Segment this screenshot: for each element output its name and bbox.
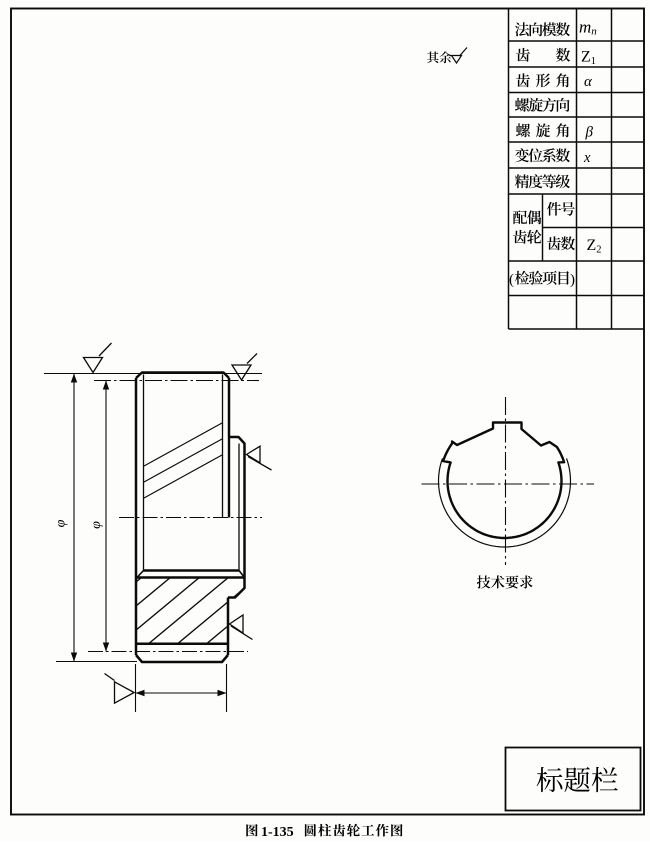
svg-text:φ: φ — [89, 521, 104, 529]
svg-text:1-135: 1-135 — [261, 825, 294, 840]
svg-text:x: x — [583, 150, 591, 166]
svg-text:φ: φ — [54, 519, 69, 527]
svg-text:β: β — [585, 125, 594, 141]
svg-text:): ) — [570, 272, 575, 288]
svg-text:(: ( — [509, 272, 514, 288]
svg-text:α: α — [584, 74, 593, 90]
